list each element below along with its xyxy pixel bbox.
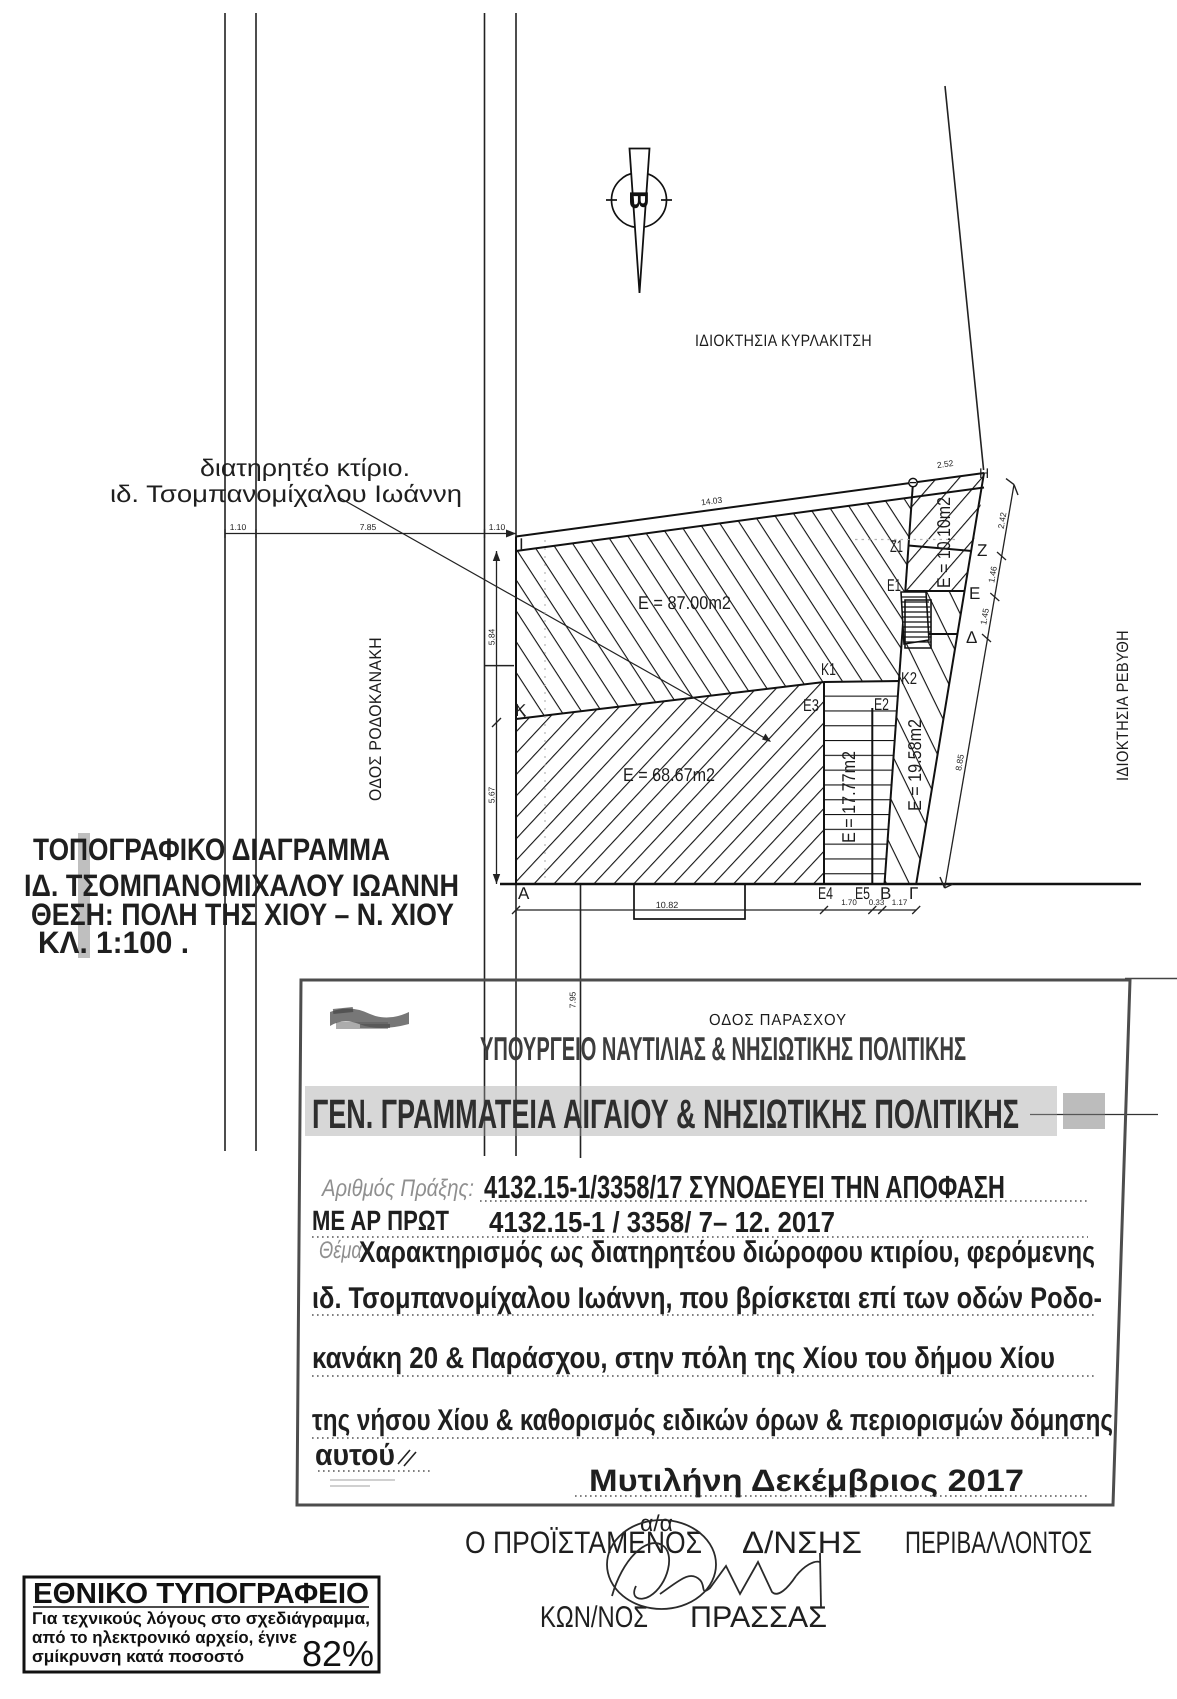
svg-text:Γ: Γ xyxy=(909,884,918,903)
svg-text:σμίκρυνση κατά ποσοστό: σμίκρυνση κατά ποσοστό xyxy=(32,1647,244,1666)
svg-text:ΙΔΙΟΚΤΗΣΙΑ ΚΥΡΛΑΚΙΤΣΗ: ΙΔΙΟΚΤΗΣΙΑ ΚΥΡΛΑΚΙΤΣΗ xyxy=(695,332,872,350)
svg-text:ΓΕΝ. ΓΡΑΜΜΑΤΕΙΑ ΑΙΓΑΙΟΥ & ΝΗΣΙ: ΓΕΝ. ΓΡΑΜΜΑΤΕΙΑ ΑΙΓΑΙΟΥ & ΝΗΣΙΩΤΙΚΗΣ ΠΟΛ… xyxy=(312,1091,1019,1137)
svg-text:Δ/ΝΣΗΣ: Δ/ΝΣΗΣ xyxy=(742,1525,862,1560)
svg-text:7.85: 7.85 xyxy=(360,522,377,532)
svg-text:E1: E1 xyxy=(887,576,901,595)
svg-text:ΚΩΝ/ΝΟΣ: ΚΩΝ/ΝΟΣ xyxy=(540,1601,648,1634)
svg-text:K: K xyxy=(515,701,527,720)
svg-text:4132.15-1 / 3358/ 7– 12. 2017: 4132.15-1 / 3358/ 7– 12. 2017 xyxy=(489,1207,835,1239)
svg-text:Χαρακτηρισμός ως διατηρητέου δ: Χαρακτηρισμός ως διατηρητέου διώροφου κτ… xyxy=(359,1236,1095,1269)
svg-text:Z1: Z1 xyxy=(890,537,903,556)
svg-text:7.95: 7.95 xyxy=(568,991,578,1008)
svg-text:K2: K2 xyxy=(901,669,917,688)
svg-text:ΚΛ. 1:100 .: ΚΛ. 1:100 . xyxy=(38,925,189,960)
svg-text:10.82: 10.82 xyxy=(656,900,679,910)
svg-text:1.10: 1.10 xyxy=(489,522,506,532)
svg-text:Αριθμός Πράξης:: Αριθμός Πράξης: xyxy=(320,1175,474,1202)
svg-text:Μυτιλήνη Δεκέμβριος 2017: Μυτιλήνη Δεκέμβριος 2017 xyxy=(589,1463,1024,1498)
svg-text:ΟΔΟΣ ΡΟΔΟΚΑΝΑΚΗ: ΟΔΟΣ ΡΟΔΟΚΑΝΑΚΗ xyxy=(366,637,385,801)
svg-text:διατηρητέο κτίριο.: διατηρητέο κτίριο. xyxy=(200,455,410,482)
svg-text:ΤΟΠΟΓΡΑΦΙΚΟ ΔΙΑΓΡΑΜΜΑ: ΤΟΠΟΓΡΑΦΙΚΟ ΔΙΑΓΡΑΜΜΑ xyxy=(33,832,390,867)
svg-text:E5: E5 xyxy=(855,884,870,903)
svg-text:E2: E2 xyxy=(874,695,889,714)
svg-text:ΠΡΑΣΣΑΣ: ΠΡΑΣΣΑΣ xyxy=(690,1601,827,1634)
svg-text:κανάκη 20 & Παράσχου, στην πόλ: κανάκη 20 & Παράσχου, στην πόλη της Χίου… xyxy=(312,1342,1055,1375)
svg-text:ΥΠΟΥΡΓΕΙΟ ΝΑΥΤΙΛΙΑΣ & ΝΗΣΙΩΤΙΚ: ΥΠΟΥΡΓΕΙΟ ΝΑΥΤΙΛΙΑΣ & ΝΗΣΙΩΤΙΚΗΣ ΠΟΛΙΤΙΚ… xyxy=(480,1030,966,1067)
svg-text:ΜΕ ΑΡ ΠΡΩΤ: ΜΕ ΑΡ ΠΡΩΤ xyxy=(312,1205,449,1236)
svg-text:E = 19.58m2: E = 19.58m2 xyxy=(904,719,925,811)
svg-text:αυτού: αυτού xyxy=(315,1439,395,1472)
svg-text:B: B xyxy=(624,191,654,210)
svg-text:ιδ. Τσομπανομίχαλου Ιωάννη, πο: ιδ. Τσομπανομίχαλου Ιωάννη, που βρίσκετα… xyxy=(312,1282,1102,1315)
svg-text:5.67: 5.67 xyxy=(487,786,497,803)
svg-text:E = 10.10m2: E = 10.10m2 xyxy=(933,497,954,588)
svg-text:ΟΔΟΣ ΠΑΡΑΣΧΟΥ: ΟΔΟΣ ΠΑΡΑΣΧΟΥ xyxy=(709,1012,847,1029)
svg-text:E = 68.67m2: E = 68.67m2 xyxy=(623,764,715,785)
svg-text:της νήσου Χίου & καθορισμός ει: της νήσου Χίου & καθορισμός ειδικών όρων… xyxy=(312,1404,1113,1437)
svg-text:1.10: 1.10 xyxy=(230,522,247,532)
svg-text:B: B xyxy=(880,884,891,903)
svg-text:Z: Z xyxy=(977,541,987,560)
svg-text:I: I xyxy=(519,535,524,554)
svg-text:A: A xyxy=(518,884,530,903)
svg-text:1.17: 1.17 xyxy=(892,898,908,907)
svg-text:E4: E4 xyxy=(818,884,833,903)
svg-text:4132.15-1/3358/17 ΣΥΝΟΔΕΥΕΙ: 4132.15-1/3358/17 ΣΥΝΟΔΕΥΕΙ ΤΗΝ ΑΠΟΦΑΣΗ xyxy=(484,1169,1005,1205)
svg-text:E: E xyxy=(969,584,980,603)
svg-text:Για τεχνικούς λόγους στο σχεδι: Για τεχνικούς λόγους στο σχεδιάγραμμα, xyxy=(32,1609,370,1628)
svg-text:82%: 82% xyxy=(302,1633,374,1674)
svg-text:E3: E3 xyxy=(803,696,819,715)
svg-text:5.84: 5.84 xyxy=(487,628,497,645)
svg-text:Δ: Δ xyxy=(966,628,977,647)
svg-text:H: H xyxy=(979,465,989,481)
svg-text:E = 87.00m2: E = 87.00m2 xyxy=(638,592,731,613)
svg-text:από το ηλεκτρονικό αρχείο, έγι: από το ηλεκτρονικό αρχείο, έγινε xyxy=(32,1628,297,1647)
svg-text:ιδ. Τσομπανομίχαλου Ιωάννη: ιδ. Τσομπανομίχαλου Ιωάννη xyxy=(110,481,462,508)
svg-text:ΕΘΝΙΚΟ ΤΥΠΟΓΡΑΦΕΙΟ: ΕΘΝΙΚΟ ΤΥΠΟΓΡΑΦΕΙΟ xyxy=(33,1578,369,1610)
svg-text:ΠΕΡΙΒΑΛΛΟΝΤΟΣ: ΠΕΡΙΒΑΛΛΟΝΤΟΣ xyxy=(905,1525,1092,1560)
svg-text:E = 17.77m2: E = 17.77m2 xyxy=(838,751,859,843)
svg-text:K1: K1 xyxy=(821,660,836,679)
svg-text:Ο ΠΡΟΪΣΤΑΜΕΝΟΣ: Ο ΠΡΟΪΣΤΑΜΕΝΟΣ xyxy=(465,1525,702,1560)
svg-text:ΙΔΙΟΚΤΗΣΙΑ ΡΕΒΥΘΗ: ΙΔΙΟΚΤΗΣΙΑ ΡΕΒΥΘΗ xyxy=(1114,630,1132,781)
